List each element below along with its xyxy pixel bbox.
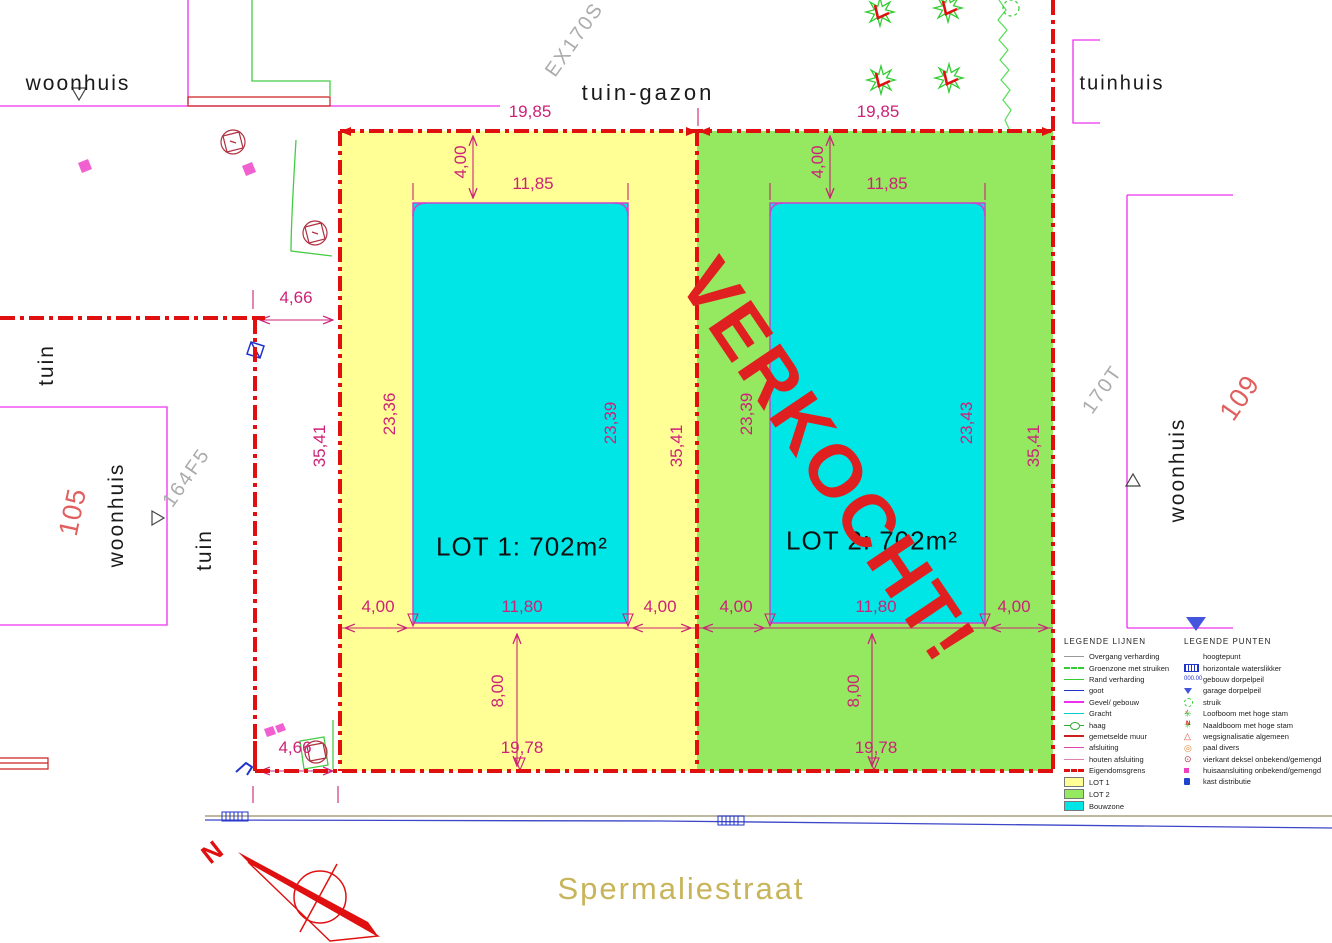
dimension-lines bbox=[253, 108, 1053, 803]
dim-label: 19,78 bbox=[855, 738, 898, 758]
distribution-cabinet-icon bbox=[236, 342, 264, 775]
legend-item: garage dorpelpeil bbox=[1184, 685, 1332, 696]
legend-item: goot bbox=[1064, 685, 1186, 696]
masonry-wall-lines bbox=[0, 97, 330, 769]
street-name: Spermaliestraat bbox=[557, 871, 804, 907]
gully-icons bbox=[222, 812, 744, 825]
hedge-line-icon bbox=[1064, 725, 1084, 726]
garage-dorpelpeil-icon bbox=[1184, 688, 1199, 694]
legend-item: afsluiting bbox=[1064, 742, 1186, 753]
legend-punten: LEGENDE PUNTEN hoogtepunt horizontale wa… bbox=[1184, 637, 1332, 788]
dim-label: 35,41 bbox=[667, 425, 687, 468]
dim-label: 4,00 bbox=[451, 145, 471, 178]
dim-label: 4,00 bbox=[643, 597, 676, 617]
gebouw-dorpelpeil-icon: 000.00 bbox=[1184, 675, 1199, 683]
legend-item: houten afsluiting bbox=[1064, 754, 1186, 765]
site-plan: N woonhuis tuin-gazon tuinhuis EX170S tu… bbox=[0, 0, 1332, 943]
legend-item: Eigendomsgrens bbox=[1064, 765, 1186, 776]
dim-label: 35,41 bbox=[1024, 425, 1044, 468]
legend-item: 000.00gebouw dorpelpeil bbox=[1184, 674, 1332, 685]
boundary-dashed-icon bbox=[1064, 769, 1084, 772]
struik-icon bbox=[1184, 698, 1199, 707]
dim-label: 19,78 bbox=[501, 738, 544, 758]
dim-label: 8,00 bbox=[488, 674, 508, 707]
dim-label: 4,00 bbox=[997, 597, 1030, 617]
lot1-swatch bbox=[1064, 777, 1084, 787]
legend-item: kast distributie bbox=[1184, 776, 1332, 787]
legend-item: Gracht bbox=[1064, 708, 1186, 719]
legend-item: haag bbox=[1064, 719, 1186, 730]
legend-item: LOT 1 bbox=[1064, 776, 1186, 788]
loofboom-icon: ✳∕ bbox=[1184, 710, 1199, 718]
tree-icons bbox=[866, 0, 963, 94]
dim-label: 8,00 bbox=[844, 674, 864, 707]
line-green-icon bbox=[1064, 679, 1084, 680]
shrub-icon bbox=[1003, 0, 1019, 16]
line-magenta-icon bbox=[1064, 701, 1084, 703]
dim-label: 19,85 bbox=[857, 102, 900, 122]
line-gray-icon bbox=[1064, 656, 1084, 657]
line-lightpink-icon bbox=[1064, 759, 1084, 760]
label-woonhuis-topleft: woonhuis bbox=[26, 72, 131, 96]
legend-punten-title: LEGENDE PUNTEN bbox=[1184, 637, 1332, 651]
dim-label: 4,00 bbox=[361, 597, 394, 617]
wegsignalisatie-icon: △ bbox=[1184, 732, 1199, 740]
street-lines bbox=[205, 816, 1332, 828]
legend-item: ✳∕Loofboom met hoge stam bbox=[1184, 708, 1332, 719]
vierkant-deksel-icon: ⊙ bbox=[1184, 755, 1199, 763]
legend-item: Rand verharding bbox=[1064, 674, 1186, 685]
greenzone-zigzag-icon bbox=[1064, 667, 1084, 669]
label-woonhuis-right: woonhuis bbox=[1166, 418, 1190, 523]
dim-label: 23,39 bbox=[601, 402, 621, 445]
label-tuinhuis: tuinhuis bbox=[1080, 73, 1165, 96]
legend-item: ◎paal divers bbox=[1184, 742, 1332, 753]
greenzone-zigzag bbox=[998, 0, 1011, 131]
dim-label: 23,36 bbox=[380, 393, 400, 436]
paal-divers-icon: ◎ bbox=[1184, 744, 1199, 752]
line-red-icon bbox=[1064, 735, 1084, 737]
dim-label: 4,00 bbox=[719, 597, 752, 617]
line-blue-icon bbox=[1064, 690, 1084, 691]
label-tuin-upper: tuin bbox=[35, 344, 59, 386]
label-tuin-gazon: tuin-gazon bbox=[582, 80, 715, 106]
dim-label: 11,85 bbox=[512, 174, 553, 194]
dim-label: 4,00 bbox=[808, 145, 828, 178]
legend-item: horizontale waterslikker bbox=[1184, 662, 1332, 673]
legend-item: Overgang verharding bbox=[1064, 651, 1186, 662]
dim-label: 4,66 bbox=[279, 288, 312, 308]
legend-item: Groenzone met struiken bbox=[1064, 662, 1186, 673]
dim-label: 19,85 bbox=[509, 102, 552, 122]
legend-item: ✳NNaaldboom met hoge stam bbox=[1184, 719, 1332, 730]
legend-item: gemetselde muur bbox=[1064, 731, 1186, 742]
legend-item: LOT 2 bbox=[1064, 788, 1186, 800]
bouwzone-swatch bbox=[1064, 801, 1084, 811]
legend-lines: LEGENDE LIJNEN Overgang verharding Groen… bbox=[1064, 637, 1186, 812]
legend-item: hoogtepunt bbox=[1184, 651, 1332, 662]
huisaansluiting-icon bbox=[1184, 768, 1199, 773]
legend-item: struik bbox=[1184, 697, 1332, 708]
dim-label: 4,66 bbox=[278, 738, 311, 758]
legend-item: ⊙vierkant deksel onbekend/gemengd bbox=[1184, 754, 1332, 765]
line-pink-icon bbox=[1064, 747, 1084, 748]
north-compass-icon: N bbox=[195, 835, 378, 941]
line-cyan-icon bbox=[1064, 713, 1084, 714]
dim-label: 11,80 bbox=[501, 597, 542, 617]
dim-label: 11,85 bbox=[866, 174, 907, 194]
legend-item: Gevel/ gebouw bbox=[1064, 697, 1186, 708]
lot1-label: LOT 1: 702m² bbox=[436, 532, 608, 563]
legend-item: △wegsignalisatie algemeen bbox=[1184, 731, 1332, 742]
kast-distributie-icon bbox=[1184, 778, 1199, 785]
waterslikker-icon bbox=[1184, 664, 1199, 672]
north-letter: N bbox=[195, 835, 228, 870]
label-woonhuis-left: woonhuis bbox=[105, 463, 129, 568]
dim-label: 23,43 bbox=[957, 402, 977, 445]
green-edge-lines bbox=[252, 0, 333, 769]
label-tuin-lower: tuin bbox=[193, 529, 217, 571]
legend-item: huisaansluiting onbekend/gemengd bbox=[1184, 765, 1332, 776]
garage-level-triangle bbox=[1186, 617, 1206, 631]
lot2-swatch bbox=[1064, 789, 1084, 799]
naaldboom-icon: ✳N bbox=[1184, 721, 1199, 729]
legend-item: Bouwzone bbox=[1064, 800, 1186, 812]
dim-label: 35,41 bbox=[310, 425, 330, 468]
legend-lines-title: LEGENDE LIJNEN bbox=[1064, 637, 1186, 651]
